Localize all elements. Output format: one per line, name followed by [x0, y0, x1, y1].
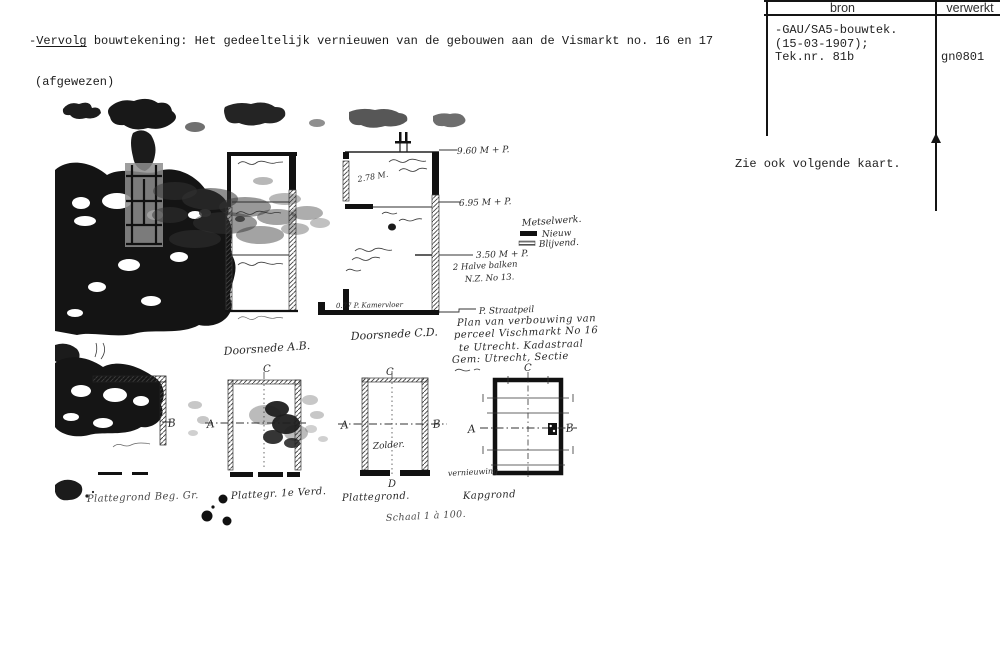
see-also-note: Zie ook volgende kaart.: [735, 158, 901, 172]
marker-a: A: [339, 418, 349, 432]
bron-entry-line: -GAU/SA5-bouwtek.: [775, 24, 897, 38]
chimney-cap: [395, 141, 411, 144]
plan-zolder: A B Zolder. D: [338, 371, 447, 490]
bron-entry-line: (15-03-1907);: [775, 38, 897, 52]
verwerkt-entry: gn0801: [941, 51, 984, 65]
description-line-2: (afgewezen): [35, 76, 713, 90]
plan-kap: A B vernieuwing: [448, 372, 577, 480]
marker-a: A: [466, 422, 476, 436]
plan-labels: Plattegrond Beg. Gr. Plattegr. 1e Verd. …: [86, 486, 516, 525]
section-cd-label: Doorsnede C.D.: [349, 325, 438, 343]
legend-swatch-existing: [519, 241, 535, 246]
building-drawing-scan: 9.60 M + P. 6.95 M + P. 3.50 M + P. 2 Ha…: [55, 95, 600, 540]
card-column-divider: [935, 0, 937, 211]
balken-note-line-1: 2 Halve balken: [452, 260, 518, 273]
description-rest: bouwtekening: Het gedeeltelijk vernieuwe…: [87, 34, 714, 48]
marker-d: D: [387, 479, 396, 490]
legend-label-existing: Blijvend.: [538, 238, 580, 250]
vernieuwing-note: vernieuwing: [448, 466, 499, 478]
legend: Metselwerk. Nieuw Blijvend.: [519, 214, 582, 250]
card-arrow-mark: [931, 133, 941, 143]
floor-dimension: 0.77 P. Kamervloer: [336, 301, 404, 310]
balken-note-line-2: N.Z. No 13.: [464, 272, 515, 285]
scale-note: Schaal 1 à 100.: [386, 509, 467, 524]
marker-b: B: [431, 417, 441, 431]
description-line-1: -Vervolg bouwtekening: Het gedeeltelijk …: [29, 35, 713, 49]
room-label-zolder: Zolder.: [372, 440, 406, 452]
chimney-stub: [405, 132, 408, 141]
attic-dimension: 2.78 M.: [356, 170, 389, 184]
ink-dot: [211, 505, 214, 508]
description-underlined-word: Vervolg: [36, 34, 86, 48]
marker-b: B: [564, 421, 574, 435]
archive-card-page: { "description": { "dash": "-", "underli…: [0, 0, 1000, 645]
legend-title: Metselwerk.: [520, 214, 581, 229]
chimney-stub: [399, 132, 402, 141]
marker-b: B: [166, 416, 176, 430]
dimension-960: 9.60 M + P.: [457, 145, 510, 157]
column-header-verwerkt: verwerkt: [940, 1, 1000, 15]
ink-dot: [202, 511, 213, 522]
card-left-border: [766, 0, 768, 136]
description: -Vervolg bouwtekening: Het gedeeltelijk …: [29, 8, 713, 103]
plan-label: Plattegrond Beg. Gr.: [86, 490, 199, 505]
plan-label: Plattegr. 1e Verd.: [230, 486, 327, 502]
legend-swatch-new: [520, 231, 537, 236]
column-header-bron: bron: [765, 1, 920, 15]
bron-entry: -GAU/SA5-bouwtek. (15-03-1907); Tek.nr. …: [775, 24, 897, 65]
bron-entry-line: Tek.nr. 81b: [775, 51, 897, 65]
dimension-695: 6.95 M + P.: [459, 197, 512, 209]
dimension-350: 3.50 M + P.: [476, 249, 529, 261]
plan-label: Kapgrond: [462, 489, 516, 502]
section-ab-label: Doorsnede A.B.: [222, 339, 310, 358]
ink-speckle-arm: [152, 177, 330, 248]
ink-dot: [223, 517, 232, 526]
plan-eerste-verdieping: A: [205, 372, 308, 477]
marker-c: C: [386, 367, 394, 378]
plan-label: Plattegrond.: [341, 491, 410, 504]
section-cd: 9.60 M + P. 6.95 M + P. 3.50 M + P. 2 Ha…: [318, 132, 534, 317]
door-mark: [548, 423, 557, 435]
